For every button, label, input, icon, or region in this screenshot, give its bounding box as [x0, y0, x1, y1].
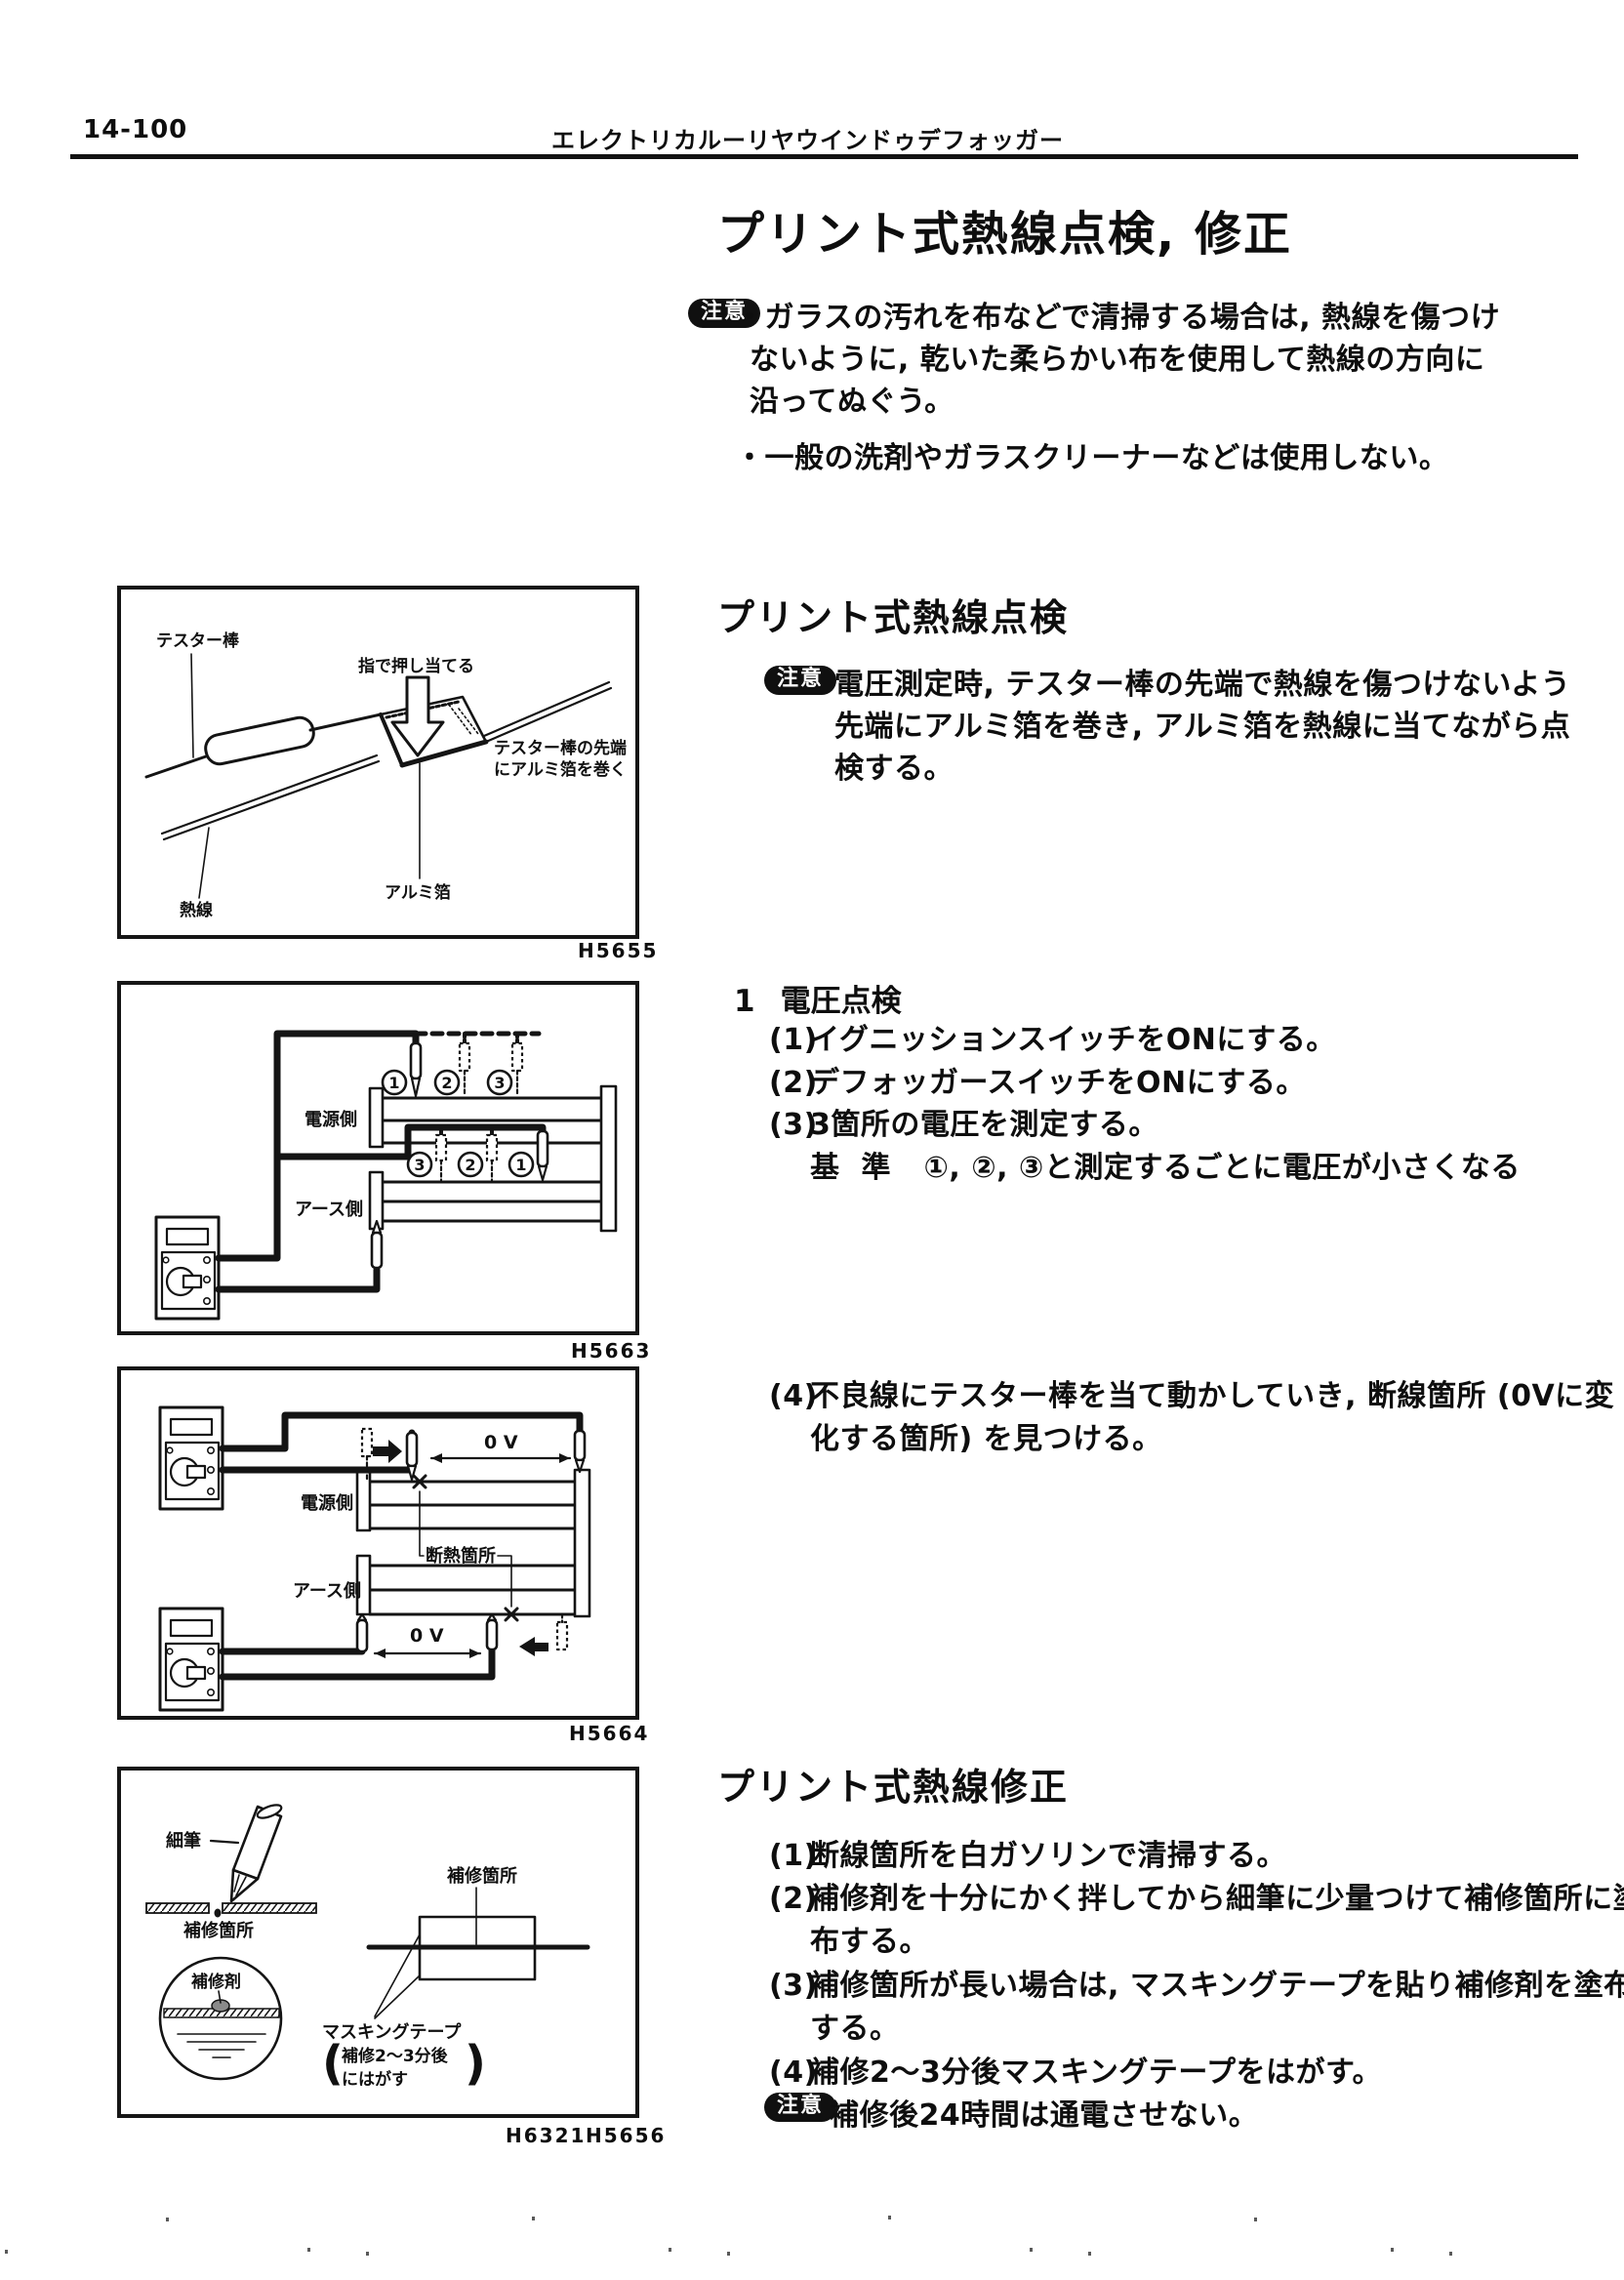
heat-wire-hatched: [146, 1903, 316, 1913]
header-divider: [70, 154, 1578, 159]
standard-label: 基 準: [810, 1151, 896, 1185]
step-number: (4): [769, 1379, 810, 1413]
step-item: (3)補修箇所が長い場合は, マスキングテープを貼り補修剤を塗布: [769, 1961, 1624, 2004]
leader-line: [375, 1975, 420, 2018]
note-line: ・一般の洗剤やガラスクリーナーなどは使用しない。: [735, 433, 1448, 476]
note-line: 沿ってぬぐう。: [750, 377, 954, 420]
step-text-continued: 布する。: [810, 1917, 929, 1960]
defogger-grid: [357, 1470, 589, 1616]
step-text: 補修2〜3分後マスキングテープをはがす。: [810, 2056, 1382, 2090]
figure-code: H5655: [578, 939, 658, 962]
step-number: (1): [769, 1023, 810, 1057]
svg-text:2: 2: [441, 1074, 452, 1092]
step-text-continued: 化する箇所) を見つける。: [810, 1414, 1162, 1457]
masking-tape: [369, 1917, 588, 1979]
step-text: 断線箇所を白ガソリンで清掃する。: [810, 1839, 1286, 1873]
note-line: 電圧測定時, テスター棒の先端で熱線を傷つけないよう: [834, 660, 1570, 703]
svg-text:3: 3: [414, 1156, 425, 1174]
label-repair-spot: 補修箇所: [183, 1920, 254, 1941]
step-text-continued: する。: [810, 2004, 900, 2047]
label-repair-agent: 補修剤: [190, 1972, 241, 1992]
note-line: 先端にアルミ箔を巻き, アルミ箔を熱線に当てながら点: [834, 702, 1570, 745]
paren-open: (: [322, 2036, 344, 2091]
right-bus-bar: [601, 1086, 616, 1231]
note-line: 検する。: [834, 744, 954, 787]
label-power-side: 電源側: [304, 1109, 357, 1130]
label-heat-wire: 熱線: [180, 900, 213, 920]
step-text: 3箇所の電圧を測定する。: [810, 1108, 1158, 1142]
step-number: (4): [769, 2056, 810, 2090]
caution-badge: 注意: [764, 2093, 836, 2122]
label-break-point: 断熱箇所: [426, 1545, 496, 1567]
section-heading-inspection: プリント式熱線点検: [717, 588, 1069, 641]
circled-number: 1 2 3 3 2 1: [383, 1071, 533, 1176]
step-item: (3)3箇所の電圧を測定する。: [769, 1100, 1158, 1143]
bullet: ・: [735, 441, 765, 475]
figure-code: H5656: [586, 2124, 666, 2147]
step-number: (2): [769, 1066, 810, 1100]
svg-text:3: 3: [494, 1074, 505, 1092]
leader-line: [211, 1841, 238, 1843]
header-title: エレクトリカルーリヤウインドゥデフォッガー: [551, 121, 1064, 155]
figure-break-location: 0 V 断熱箇所 0 V: [117, 1366, 639, 1720]
step-text: 補修箇所が長い場合は, マスキングテープを貼り補修剤を塗布: [810, 1969, 1624, 2003]
multimeter: [160, 1407, 223, 1509]
figure-voltage-check: 1 2 3 3 2 1 電源側 アース側: [117, 981, 639, 1335]
step-text: デフォッガースイッチをONにする。: [810, 1066, 1306, 1100]
label-wrap-foil-1: テスター棒の先端: [494, 738, 627, 758]
leader-line: [498, 1556, 511, 1607]
paren-close: ): [465, 2036, 486, 2091]
tester-probe: [538, 1131, 548, 1180]
sub-heading-voltage-check: 1電圧点検: [734, 976, 902, 1020]
leader-line: [420, 1491, 424, 1556]
note-line: ・ガラスの汚れを布などで清掃する場合は, 熱線を傷つけ: [735, 293, 1500, 336]
measure-span-arrow: [375, 1649, 480, 1658]
power-bus-bar: [370, 1088, 383, 1147]
note-line: ないように, 乾いた柔らかい布を使用して熱線の方向に: [750, 335, 1484, 378]
note-text: ガラスの汚れを布などで清掃する場合は, 熱線を傷つけ: [765, 301, 1501, 335]
figure-break-location-drawing: 0 V 断熱箇所 0 V: [121, 1370, 635, 1716]
step-number: (1): [769, 1839, 810, 1873]
note-line: 補修後24時間は通電させない。: [830, 2091, 1258, 2134]
step-text: イグニッションスイッチをONにする。: [810, 1023, 1336, 1057]
page-title: プリント式熱線点検, 修正: [717, 195, 1292, 264]
label-tester-rod: テスター棒: [156, 631, 240, 651]
svg-text:1: 1: [388, 1074, 399, 1092]
test-lead: [223, 1415, 580, 1448]
fine-brush: [215, 1803, 283, 1918]
page-number: 14-100: [83, 115, 187, 144]
svg-text:2: 2: [465, 1156, 475, 1174]
bullet: ・: [735, 301, 765, 335]
measure-span-arrow: [431, 1453, 570, 1463]
step-item: (1)イグニッションスイッチをONにする。: [769, 1015, 1336, 1058]
multimeter: [156, 1217, 219, 1319]
label-wrap-foil-2: にアルミ箔を巻く: [494, 759, 627, 780]
figure-code: H6321: [506, 2124, 586, 2147]
multimeter: [160, 1608, 223, 1710]
standard-line: 基 準①, ②, ③と測定するごとに電圧が小さくなる: [810, 1143, 1521, 1186]
step-number: (2): [769, 1882, 810, 1916]
step-item: (2)デフォッガースイッチをONにする。: [769, 1058, 1306, 1101]
figure-foil-probe-drawing: テスター棒 指で押し当てる テスター棒の先端 にアルミ箔を巻く アルミ箔 熱線: [121, 590, 635, 935]
step-number: (3): [769, 1108, 810, 1142]
label-brush: 細筆: [166, 1830, 201, 1852]
figure-code: H5664: [569, 1722, 649, 1745]
label-zero-volt: 0 V: [484, 1432, 518, 1453]
figure-foil-probe: テスター棒 指で押し当てる テスター棒の先端 にアルミ箔を巻く アルミ箔 熱線: [117, 586, 639, 939]
label-zero-volt: 0 V: [410, 1625, 444, 1647]
label-power-side: 電源側: [301, 1492, 353, 1514]
section-heading-repair: プリント式熱線修正: [717, 1757, 1069, 1811]
move-right-arrow-icon: [373, 1440, 402, 1463]
sub-heading-number: 1: [734, 984, 755, 1019]
caution-badge: 注意: [764, 666, 836, 695]
tester-probe: [372, 1221, 382, 1268]
label-masking-note-1: 補修2〜3分後: [341, 2046, 449, 2066]
power-bus-bar: [357, 1472, 370, 1530]
label-ground-side: アース側: [295, 1199, 363, 1220]
step-item: (1)断線箇所を白ガソリンで清掃する。: [769, 1831, 1286, 1874]
right-bus-bar: [575, 1470, 589, 1616]
manual-page: 14-100 エレクトリカルーリヤウインドゥデフォッガー プリント式熱線点検, …: [0, 0, 1624, 2280]
sub-heading-label: 電圧点検: [781, 984, 902, 1019]
svg-text:1: 1: [515, 1156, 526, 1174]
figure-repair-drawing: 細筆 補修箇所 補修剤: [121, 1771, 635, 2114]
tester-probe: [411, 1043, 421, 1096]
label-masking-note-2: にはがす: [342, 2069, 408, 2090]
label-repair-spot: 補修箇所: [446, 1865, 517, 1887]
label-foil: アルミ箔: [385, 882, 451, 903]
figure-code: H5663: [571, 1339, 651, 1363]
magnified-view: 補修剤: [160, 1958, 281, 2079]
figure-voltage-check-drawing: 1 2 3 3 2 1 電源側 アース側: [121, 985, 635, 1331]
step-text: 補修剤を十分にかく拌してから細筆に少量つけて補修箇所に塗: [810, 1882, 1624, 1916]
label-press-finger: 指で押し当てる: [358, 656, 474, 676]
leader-line: [191, 654, 193, 757]
step-item: (2)補修剤を十分にかく拌してから細筆に少量つけて補修箇所に塗: [769, 1874, 1624, 1917]
figure-repair: 細筆 補修箇所 補修剤: [117, 1767, 639, 2118]
step-item: (4)不良線にテスター棒を当て動かしていき, 断線箇所 (0Vに変: [769, 1371, 1614, 1414]
label-ground-side: アース側: [293, 1580, 361, 1602]
tester-probe-dashed: [557, 1614, 567, 1649]
step-number: (3): [769, 1969, 810, 2003]
standard-text: ①, ②, ③と測定するごとに電圧が小さくなる: [923, 1151, 1520, 1185]
test-lead: [219, 1270, 377, 1289]
step-text: 不良線にテスター棒を当て動かしていき, 断線箇所 (0Vに変: [810, 1379, 1614, 1413]
step-item: (4)補修2〜3分後マスキングテープをはがす。: [769, 2048, 1382, 2091]
move-left-arrow-icon: [519, 1637, 548, 1656]
leader-line: [199, 828, 209, 898]
test-lead: [219, 1034, 416, 1258]
note-text: 一般の洗剤やガラスクリーナーなどは使用しない。: [765, 441, 1449, 475]
